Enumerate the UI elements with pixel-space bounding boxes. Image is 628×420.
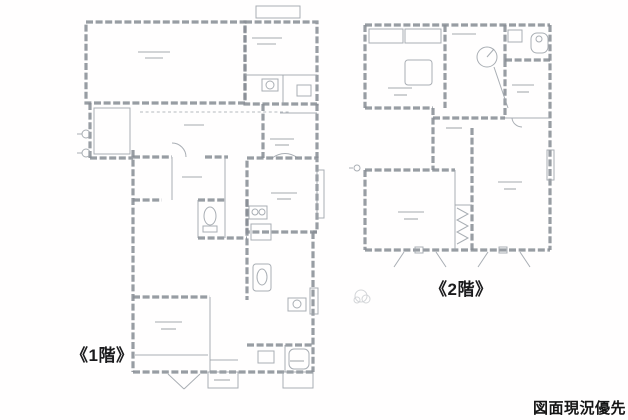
floor2-label: 《2階》 [430,275,492,300]
floor2-plan [349,25,554,303]
floor2-annotation-marks [388,34,534,219]
drawing-priority-note: 図面現況優先 [533,397,626,418]
floor1-walls [86,6,324,388]
floor1-plan [77,6,324,389]
floor2-walls [365,25,554,250]
floor-plan-page: 《1階》 《2階》 図面現況優先 [0,0,628,420]
floor2-fixtures [349,29,548,303]
scribble-mark [354,290,370,303]
floor1-annotation-marks [138,38,304,380]
floor1-label: 《1階》 [71,341,133,366]
